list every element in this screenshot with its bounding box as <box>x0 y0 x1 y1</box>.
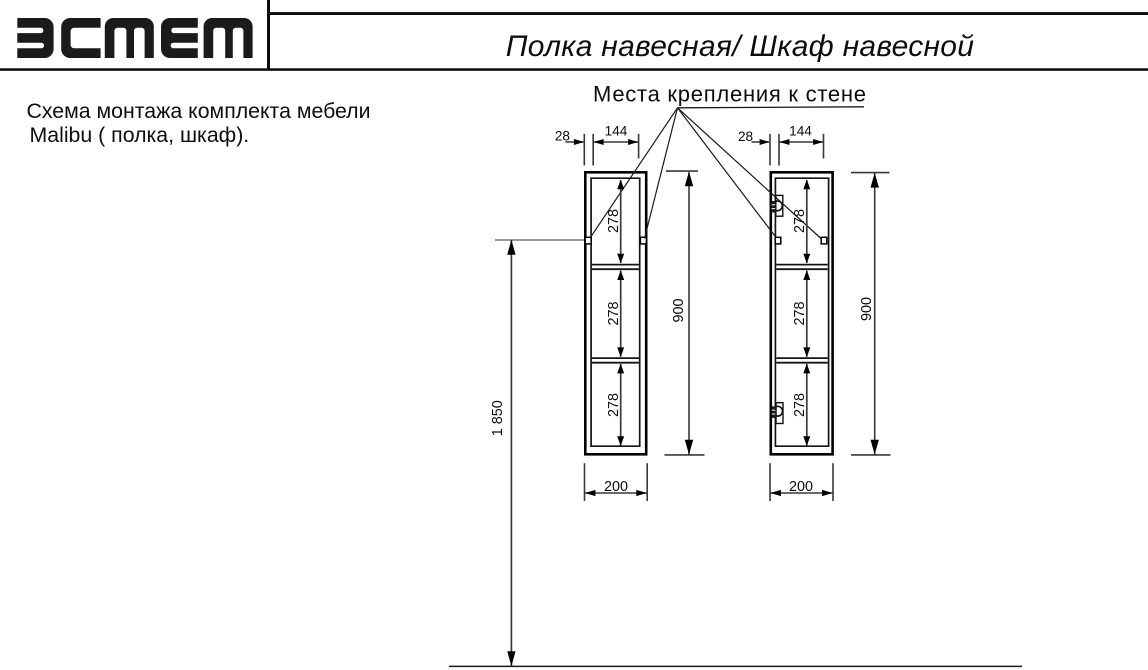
svg-text:1 850: 1 850 <box>490 400 506 436</box>
svg-text:144: 144 <box>789 123 812 138</box>
svg-text:200: 200 <box>789 479 813 495</box>
svg-text:Места крепления к стене: Места крепления к стене <box>593 82 867 107</box>
svg-text:278: 278 <box>606 209 622 233</box>
svg-text:28: 28 <box>555 129 570 144</box>
svg-text:278: 278 <box>606 393 622 417</box>
svg-text:900: 900 <box>859 297 875 321</box>
svg-text:278: 278 <box>792 301 808 325</box>
svg-text:144: 144 <box>605 123 628 138</box>
svg-text:Полка навесная/ Шкаф навесной: Полка навесная/ Шкаф навесной <box>506 30 974 63</box>
svg-text:28: 28 <box>738 129 753 144</box>
svg-text:278: 278 <box>792 393 808 417</box>
svg-text:Схема монтажа комплекта мебели: Схема монтажа комплекта мебели <box>27 99 371 123</box>
svg-text:900: 900 <box>671 298 687 322</box>
svg-text:200: 200 <box>604 479 628 495</box>
svg-text:Malibu ( полка, шкаф).: Malibu ( полка, шкаф). <box>30 123 250 147</box>
svg-text:278: 278 <box>606 301 622 325</box>
svg-text:278: 278 <box>792 209 808 233</box>
